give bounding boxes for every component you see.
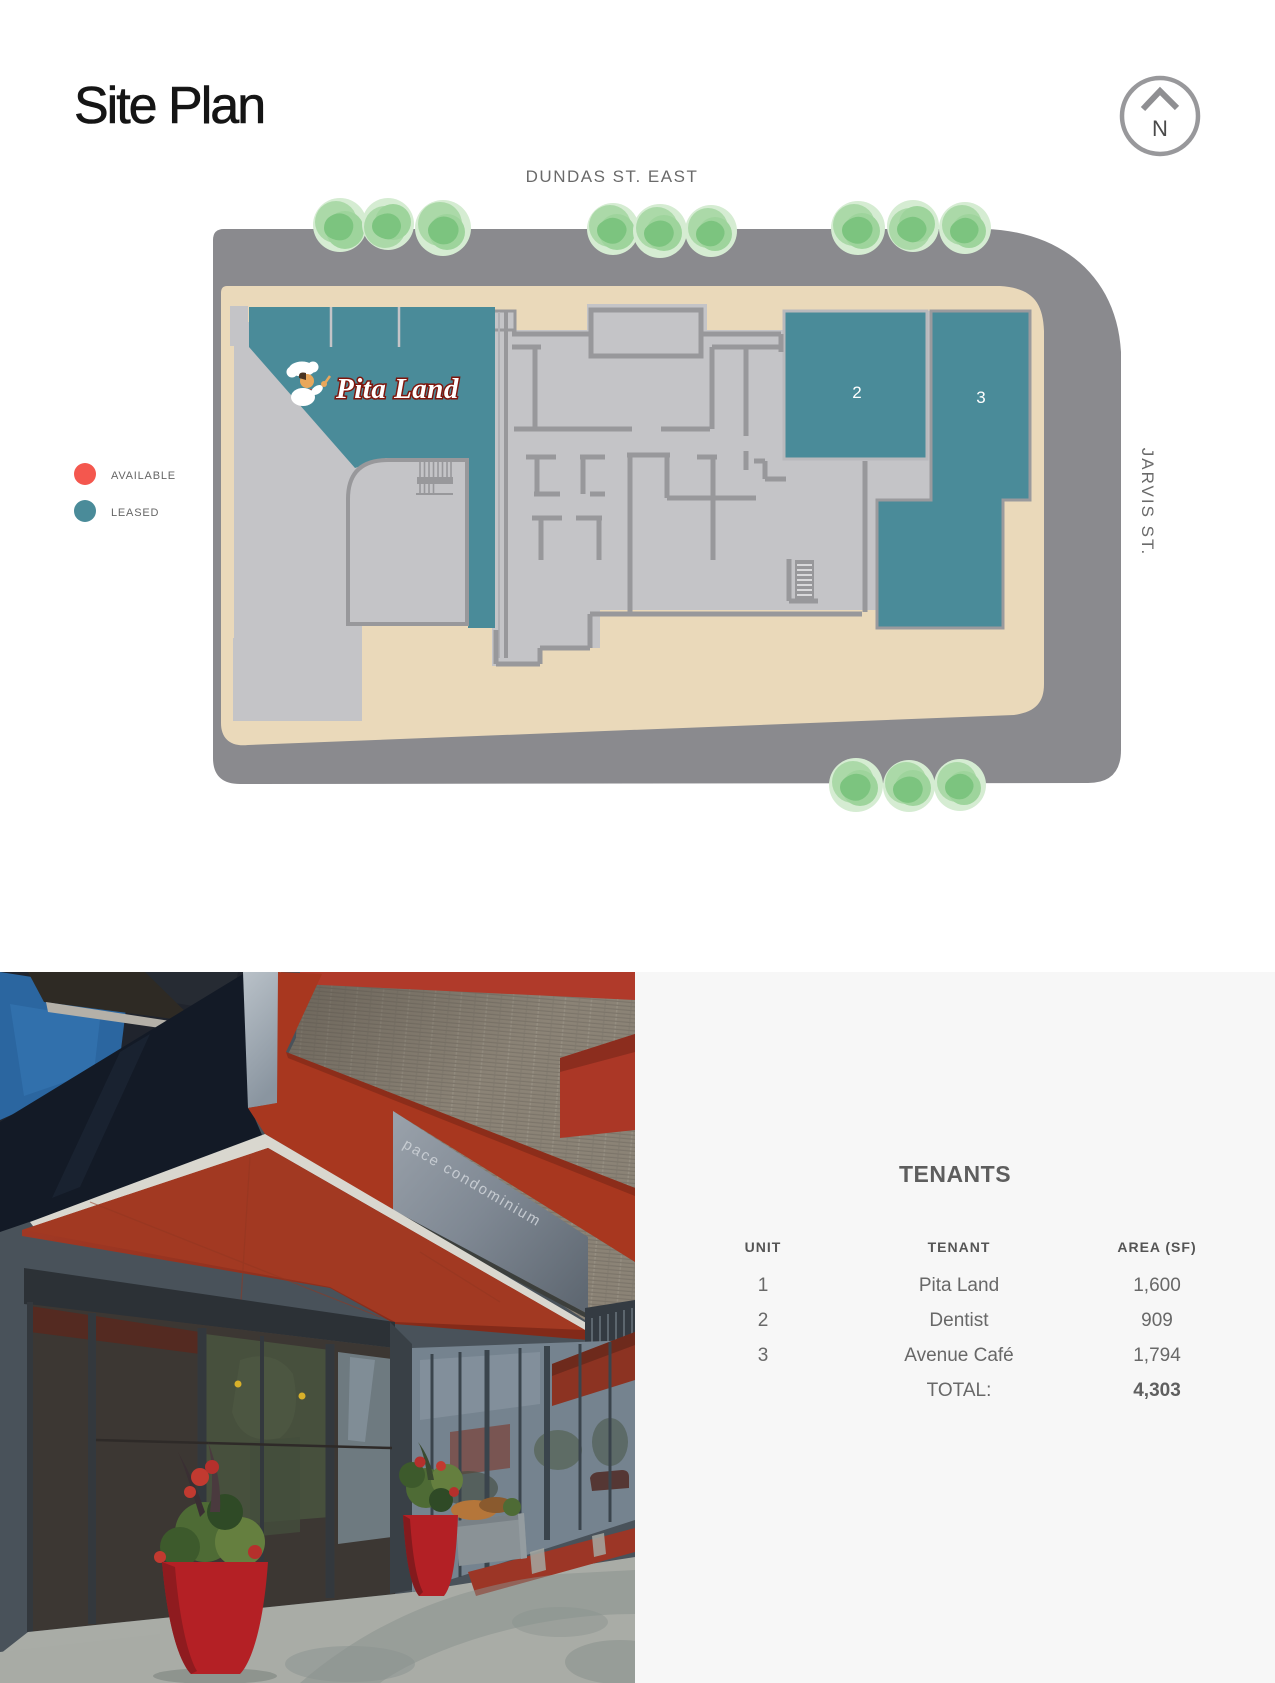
svg-text:2: 2: [852, 383, 861, 402]
svg-text:N: N: [1152, 116, 1168, 141]
svg-text:AVAILABLE: AVAILABLE: [111, 470, 176, 482]
svg-text:Pita Land: Pita Land: [335, 373, 459, 405]
svg-text:JARVIS ST.: JARVIS ST.: [1138, 448, 1157, 557]
svg-text:DUNDAS ST. EAST: DUNDAS ST. EAST: [526, 167, 699, 186]
svg-text:3: 3: [976, 388, 985, 407]
svg-text:LEASED: LEASED: [111, 507, 159, 519]
